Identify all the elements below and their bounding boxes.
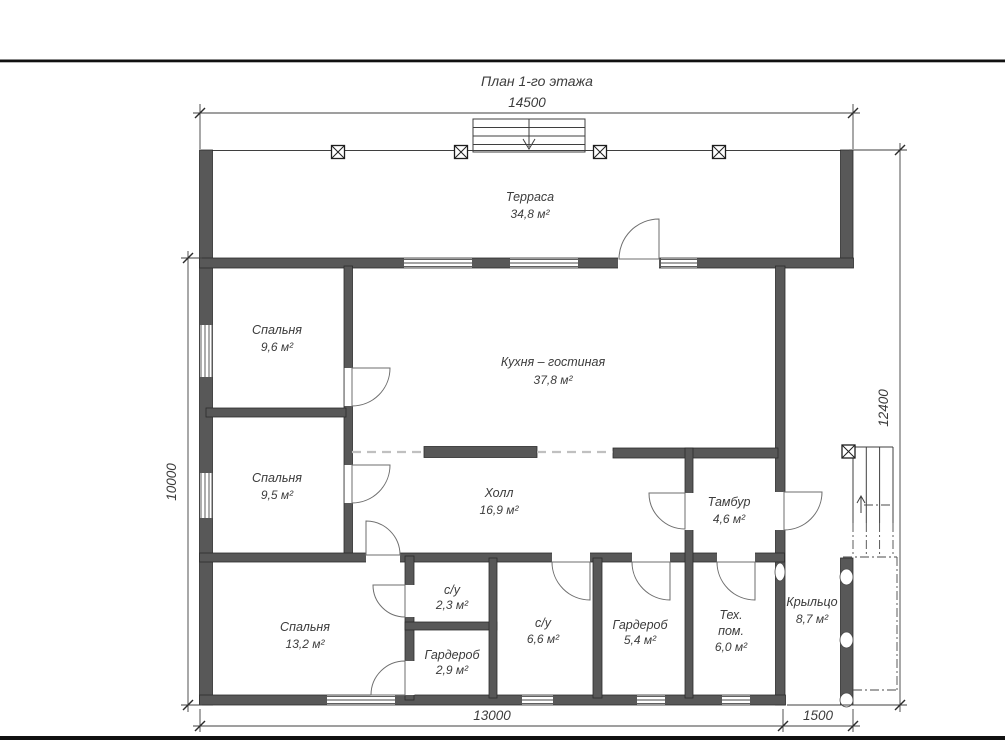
dim-bottom-main: 13000: [473, 708, 511, 723]
room-label-bedroom2: Спальня: [252, 471, 302, 485]
room-area-tambour: 4,6 м²: [713, 512, 746, 526]
room-area-porch: 8,7 м²: [796, 612, 829, 626]
window: [200, 325, 213, 377]
door-wardrobe2: [632, 562, 670, 600]
wall-terrace-right: [841, 150, 854, 260]
top-border-line: [0, 60, 1005, 63]
window: [510, 259, 578, 268]
window: [522, 696, 553, 705]
window: [637, 696, 665, 705]
door-wardrobe1: [371, 661, 405, 695]
door-tambour-hall: [649, 493, 685, 529]
room-label-kitchen: Кухня – гостиная: [501, 355, 606, 369]
opening-wardrobe2-door: [632, 553, 670, 563]
floor-plan-drawing: План 1-го этажа 14500 13000 1500 10000 1…: [0, 0, 1005, 754]
room-area-wc2: 6,6 м²: [527, 632, 560, 646]
dim-left: 10000: [164, 463, 179, 501]
opening-bedroom1-door: [345, 368, 353, 406]
room-label-hall: Холл: [484, 486, 514, 500]
wall-closets-wc2: [489, 558, 497, 698]
room-label-tambour: Тамбур: [708, 495, 751, 509]
room-area-bedroom3: 13,2 м²: [286, 637, 326, 651]
post-icon: [455, 146, 468, 159]
window: [200, 473, 213, 518]
room-area-bedroom1: 9,6 м²: [261, 340, 294, 354]
room-label-bedroom1: Спальня: [252, 323, 302, 337]
opening-tambour-left-door: [685, 493, 694, 530]
post-icon: [594, 146, 607, 159]
room-area-bedroom2: 9,5 м²: [261, 488, 294, 502]
opening-techroom-door: [717, 553, 755, 563]
room-area-hall: 16,9 м²: [480, 503, 520, 517]
room-label-porch: Крыльцо: [786, 595, 837, 609]
bottom-border-line: [0, 736, 1005, 740]
kitchen-hall-partition-bar: [424, 447, 537, 458]
door-wc1: [373, 585, 405, 617]
room-label-wc1: с/у: [444, 583, 461, 597]
terrace-entrance-stairs: [473, 119, 585, 152]
room-label-wardrobe2: Гардероб: [612, 618, 668, 632]
post-icon: [842, 445, 855, 458]
window: [722, 696, 750, 705]
wall-bedroom1-bedroom2: [206, 408, 346, 417]
door-bedroom3: [366, 521, 400, 555]
opening-wardrobe1-door: [405, 661, 415, 695]
door-tambour-porch: [784, 492, 822, 530]
post-icon: [332, 146, 345, 159]
dim-top: 14500: [508, 95, 546, 110]
opening-wc2-door: [552, 553, 590, 563]
door-terrace: [619, 219, 659, 259]
wall-wardrobe2-techroom: [685, 448, 693, 698]
door-techroom: [717, 562, 755, 600]
wall-wc-closet-divider: [405, 622, 497, 630]
wall-right-exterior: [776, 266, 786, 705]
wall-wc2-wardrobe2: [593, 558, 602, 698]
room-label-bedroom3: Спальня: [280, 620, 330, 634]
wall-hall-tambour-top: [613, 448, 778, 458]
door-bedroom2: [352, 465, 390, 503]
room-area-wardrobe2: 5,4 м²: [624, 633, 657, 647]
room-area-wc1: 2,3 м²: [435, 598, 469, 612]
room-area-kitchen: 37,8 м²: [534, 373, 574, 387]
post-icon: [713, 146, 726, 159]
room-label-wc2: с/у: [535, 616, 552, 630]
wall-left-exterior: [200, 150, 213, 705]
room-area-techroom: 6,0 м²: [715, 640, 748, 654]
window: [327, 696, 395, 705]
window: [404, 259, 472, 268]
window: [661, 259, 697, 268]
floor-plan-page: План 1-го этажа 14500 13000 1500 10000 1…: [0, 0, 1005, 754]
dim-right: 12400: [876, 389, 891, 427]
opening-bedroom2-door: [345, 465, 353, 503]
door-wc2: [552, 562, 590, 600]
room-area-terrace: 34,8 м²: [511, 207, 551, 221]
drawing-title: План 1-го этажа: [481, 73, 593, 89]
room-label-techroom: Тех.: [719, 608, 742, 622]
room-area-wardrobe1: 2,9 м²: [435, 663, 469, 677]
door-bedroom1: [352, 368, 390, 406]
room-label-wardrobe1: Гардероб: [424, 648, 480, 662]
opening-wc1-door: [405, 585, 415, 617]
dim-bottom-porch: 1500: [803, 708, 834, 723]
room-label-terrace: Терраса: [506, 190, 554, 204]
room-label-techroom-2: пом.: [718, 624, 744, 638]
